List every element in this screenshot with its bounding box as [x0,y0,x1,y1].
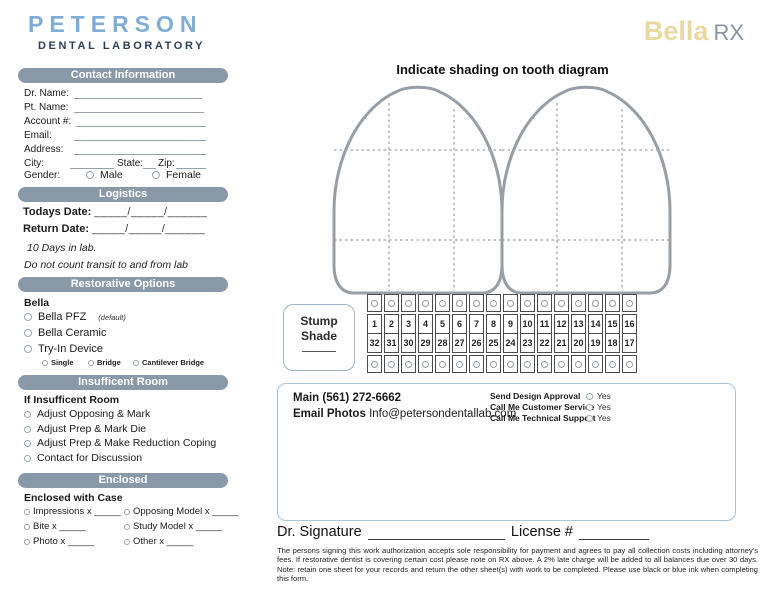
radio-call-customer-service-yes[interactable] [586,404,593,411]
dr-signature-field[interactable] [368,525,505,540]
radio-circle-icon [405,361,412,368]
radio-adjust-prep-reduction-coping[interactable]: Adjust Prep & Make Reduction Coping [24,437,216,449]
radio-circle-icon [558,300,565,307]
tooth-number-upper: 3 [401,314,416,334]
radio-circle-icon [24,411,31,418]
single-label: Single [51,358,74,367]
enclosed-group-label: Enclosed with Case [24,492,123,504]
radio-other[interactable]: Other x _____ [124,536,193,547]
todays-date-label: Todays Date: [23,206,91,218]
stump-shade-label-2: Shade [284,329,354,344]
opposing-model-label: Opposing Model x _____ [133,506,239,517]
tooth-select-upper-13[interactable] [571,294,586,312]
phone-line: Main (561) 272-6662 [293,392,401,404]
email-field[interactable] [74,140,206,141]
tooth-select-lower-27[interactable] [452,355,467,373]
radio-circle-icon [626,300,633,307]
radio-circle-icon [371,300,378,307]
radio-circle-icon [24,539,30,545]
adjust-prep-mark-die-label: Adjust Prep & Mark Die [37,423,146,435]
radio-circle-icon [422,300,429,307]
radio-cantilever-bridge[interactable]: Cantilever Bridge [133,358,204,367]
tooth-select-lower-17[interactable] [622,355,637,373]
radio-circle-icon [24,313,32,321]
todays-date-row[interactable]: Todays Date: _____/_____/______ [23,206,207,218]
radio-circle-icon [439,300,446,307]
email-label: Email: [24,130,52,141]
company-logo-subtitle: DENTAL LABORATORY [38,40,205,52]
phone-label: Main [293,392,319,404]
tooth-select-lower-25[interactable] [486,355,501,373]
radio-circle-icon [456,361,463,368]
todays-date-field[interactable]: _____/_____/______ [94,206,207,218]
tooth-number-lower: 30 [401,333,416,353]
radio-single[interactable]: Single [42,358,74,367]
tooth-select-lower-18[interactable] [605,355,620,373]
tooth-chart-column: 1023 [520,294,535,373]
pt-name-label: Pt. Name: [24,102,68,113]
tooth-number-upper: 12 [554,314,569,334]
radio-circle-icon [575,300,582,307]
tooth-shading-diagram[interactable] [330,80,675,298]
email-photos-label: Email Photos [293,408,366,420]
bella-pfz-label: Bella PFZ [38,311,86,323]
radio-adjust-prep-mark-die[interactable]: Adjust Prep & Mark Die [24,423,146,435]
tooth-chart-column: 528 [435,294,450,373]
tooth-number-lower: 17 [622,333,637,353]
section-header-contact-information: Contact Information [18,68,228,83]
tooth-chart-column: 825 [486,294,501,373]
tooth-number-upper: 13 [571,314,586,334]
tooth-select-lower-20[interactable] [571,355,586,373]
tooth-chart-column: 132 [367,294,382,373]
radio-circle-icon [609,300,616,307]
tooth-chart-column: 1518 [605,294,620,373]
restorative-group-label: Bella [24,297,49,309]
tooth-select-lower-28[interactable] [435,355,450,373]
tooth-select-upper-11[interactable] [537,294,552,312]
radio-circle-icon [473,300,480,307]
tooth-number-upper: 8 [486,314,501,334]
call-me-customer-service-row: Call Me Customer Service Yes [490,402,730,412]
tooth-select-upper-12[interactable] [554,294,569,312]
radio-circle-icon [124,539,130,545]
send-design-approval-row: Send Design Approval Yes [490,391,730,401]
tooth-select-upper-16[interactable] [622,294,637,312]
tooth-select-lower-29[interactable] [418,355,433,373]
radio-circle-icon [133,360,139,366]
return-date-label: Return Date: [23,223,89,235]
tooth-number-lower: 25 [486,333,501,353]
radio-circle-icon [24,509,30,515]
tooth-diagram-title: Indicate shading on tooth diagram [330,62,675,77]
gender-female-label: Female [166,169,201,181]
account-label: Account #: [24,116,71,127]
tooth-number-lower: 21 [554,333,569,353]
tooth-select-upper-15[interactable] [605,294,620,312]
radio-circle-icon [24,345,32,353]
radio-gender-female[interactable]: Female [152,169,201,181]
call-me-technical-support-label: Call Me Technical Support [490,413,586,423]
radio-circle-icon [524,300,531,307]
tooth-select-lower-30[interactable] [401,355,416,373]
tooth-chart: 1322313304295286277268259241023112212211… [367,294,637,373]
pt-name-field[interactable] [74,112,204,113]
default-note: (default) [98,313,126,322]
radio-circle-icon [541,361,548,368]
tooth-chart-column: 627 [452,294,467,373]
tooth-number-lower: 22 [537,333,552,353]
radio-circle-icon [88,360,94,366]
radio-circle-icon [422,361,429,368]
tooth-number-upper: 11 [537,314,552,334]
radio-circle-icon [575,361,582,368]
radio-circle-icon [490,361,497,368]
radio-circle-icon [42,360,48,366]
stump-shade-label-1: Stump [284,314,354,329]
radio-send-design-approval-yes[interactable] [586,393,593,400]
tooth-select-upper-6[interactable] [452,294,467,312]
tooth-number-lower: 18 [605,333,620,353]
tooth-select-lower-21[interactable] [554,355,569,373]
radio-circle-icon [388,361,395,368]
yes-label: Yes [597,413,611,423]
tooth-select-upper-14[interactable] [588,294,603,312]
tooth-select-upper-4[interactable] [418,294,433,312]
tooth-number-upper: 7 [469,314,484,334]
radio-circle-icon [473,361,480,368]
tooth-chart-column: 1419 [588,294,603,373]
lab-days-note: 10 Days in lab. [27,242,96,254]
company-logo: PETERSON [28,11,203,38]
product-suffix: RX [713,20,744,45]
section-header-restorative-options: Restorative Options [18,277,228,292]
tooth-select-upper-7[interactable] [469,294,484,312]
tooth-select-upper-8[interactable] [486,294,501,312]
tooth-select-lower-32[interactable] [367,355,382,373]
tooth-chart-column: 330 [401,294,416,373]
bella-ceramic-label: Bella Ceramic [38,327,106,339]
tooth-chart-column: 1617 [622,294,637,373]
tooth-select-lower-19[interactable] [588,355,603,373]
license-label: License # [511,524,573,540]
tooth-select-lower-23[interactable] [520,355,535,373]
tooth-number-upper: 6 [452,314,467,334]
radio-adjust-opposing[interactable]: Adjust Opposing & Mark [24,408,150,420]
tooth-select-lower-26[interactable] [469,355,484,373]
tooth-select-lower-22[interactable] [537,355,552,373]
call-me-customer-service-label: Call Me Customer Service [490,402,586,412]
radio-circle-icon [592,361,599,368]
tooth-number-lower: 32 [367,333,382,353]
return-date-field[interactable]: _____/_____/______ [92,223,205,235]
transit-note: Do not count transit to and from lab [24,259,188,271]
email-line: Email Photos Info@petersondentallab.com [293,408,516,420]
radio-circle-icon [388,300,395,307]
tooth-number-lower: 31 [384,333,399,353]
study-model-label: Study Model x _____ [133,521,222,532]
tooth-chart-column: 429 [418,294,433,373]
radio-circle-icon [592,300,599,307]
radio-circle-icon [24,329,32,337]
radio-circle-icon [24,455,31,462]
legal-disclaimer: The persons signing this work authorizat… [277,546,758,584]
section-header-enclosed: Enclosed [18,473,228,488]
dr-name-label: Dr. Name: [24,88,69,99]
address-label: Address: [24,144,63,155]
tooth-select-upper-9[interactable] [503,294,518,312]
radio-circle-icon [405,300,412,307]
radio-bella-ceramic[interactable]: Bella Ceramic [24,327,106,339]
phone-number: (561) 272-6662 [322,392,401,404]
bridge-label: Bridge [97,358,121,367]
tooth-number-lower: 26 [469,333,484,353]
send-design-approval-label: Send Design Approval [490,391,586,401]
cantilever-bridge-label: Cantilever Bridge [142,358,204,367]
radio-circle-icon [626,361,633,368]
tooth-number-upper: 9 [503,314,518,334]
radio-circle-icon [609,361,616,368]
zip-label: Zip: [158,158,175,169]
account-field[interactable] [76,126,206,127]
yes-label: Yes [597,391,611,401]
adjust-opposing-label: Adjust Opposing & Mark [37,408,150,420]
radio-circle-icon [86,171,94,179]
radio-circle-icon [541,300,548,307]
radio-gender-male[interactable]: Male [86,169,123,181]
tooth-select-upper-5[interactable] [435,294,450,312]
radio-impressions[interactable]: Impressions x _____ [24,506,121,517]
photo-label: Photo x _____ [33,536,94,547]
tooth-number-upper: 1 [367,314,382,334]
dr-signature-label: Dr. Signature [277,524,362,540]
section-header-insufficient-room: Insufficent Room [18,375,228,390]
radio-circle-icon [507,361,514,368]
tooth-select-upper-2[interactable] [384,294,399,312]
license-field[interactable] [579,525,649,540]
radio-circle-icon [124,509,130,515]
dr-name-field[interactable] [74,98,202,99]
radio-opposing-model[interactable]: Opposing Model x _____ [124,506,239,517]
stump-shade-box: Stump Shade [283,304,355,371]
tooth-select-upper-10[interactable] [520,294,535,312]
tooth-number-upper: 2 [384,314,399,334]
gender-label: Gender: [24,170,60,181]
address-field[interactable] [74,154,206,155]
tooth-number-lower: 19 [588,333,603,353]
tooth-number-lower: 24 [503,333,518,353]
tooth-number-upper: 5 [435,314,450,334]
radio-circle-icon [24,426,31,433]
tooth-chart-column: 924 [503,294,518,373]
tooth-select-lower-31[interactable] [384,355,399,373]
tooth-select-upper-3[interactable] [401,294,416,312]
tooth-chart-column: 231 [384,294,399,373]
tooth-number-upper: 14 [588,314,603,334]
state-label: State: [117,158,143,169]
tooth-number-upper: 16 [622,314,637,334]
radio-circle-icon [24,524,30,530]
return-date-row[interactable]: Return Date: _____/_____/______ [23,223,205,235]
radio-try-in-device[interactable]: Try-In Device [24,343,103,355]
radio-circle-icon [456,300,463,307]
tooth-diagram-left[interactable] [334,87,502,293]
tooth-chart-column: 1122 [537,294,552,373]
tooth-chart-column: 726 [469,294,484,373]
radio-photo[interactable]: Photo x _____ [24,536,94,547]
stump-shade-field[interactable] [302,351,336,352]
tooth-diagram-right[interactable] [502,87,670,293]
radio-study-model[interactable]: Study Model x _____ [124,521,222,532]
tooth-number-lower: 27 [452,333,467,353]
tooth-number-lower: 23 [520,333,535,353]
bite-label: Bite x _____ [33,521,86,532]
radio-circle-icon [439,361,446,368]
product-name: Bella [644,16,709,46]
impressions-label: Impressions x _____ [33,506,121,517]
call-me-technical-support-row: Call Me Technical Support Yes [490,413,730,423]
tooth-chart-column: 1221 [554,294,569,373]
tooth-number-lower: 20 [571,333,586,353]
tooth-select-upper-1[interactable] [367,294,382,312]
radio-circle-icon [524,361,531,368]
radio-circle-icon [558,361,565,368]
radio-bite[interactable]: Bite x _____ [24,521,86,532]
tooth-number-upper: 15 [605,314,620,334]
gender-male-label: Male [100,169,123,181]
other-label: Other x _____ [133,536,193,547]
yes-label: Yes [597,402,611,412]
tooth-number-upper: 10 [520,314,535,334]
radio-circle-icon [507,300,514,307]
rx-form-page: PETERSON DENTAL LABORATORY BellaRX Conta… [0,0,768,593]
tooth-number-lower: 28 [435,333,450,353]
radio-bridge[interactable]: Bridge [88,358,121,367]
try-in-device-label: Try-In Device [38,343,103,355]
tooth-chart-column: 1320 [571,294,586,373]
radio-circle-icon [24,440,31,447]
insufficient-room-group-label: If Insufficent Room [24,394,119,406]
signature-row: Dr. Signature License # [277,524,649,540]
radio-circle-icon [124,524,130,530]
tooth-number-upper: 4 [418,314,433,334]
radio-contact-for-discussion[interactable]: Contact for Discussion [24,452,142,464]
product-title: BellaRX [644,16,744,47]
radio-circle-icon [152,171,160,179]
radio-circle-icon [490,300,497,307]
tooth-select-lower-24[interactable] [503,355,518,373]
radio-circle-icon [371,361,378,368]
notes-box[interactable]: Main (561) 272-6662 Email Photos Info@pe… [277,383,736,521]
radio-bella-pfz[interactable]: Bella PFZ(default) [24,311,126,323]
city-label: City: [24,158,44,169]
radio-call-technical-support-yes[interactable] [586,415,593,422]
section-header-logistics: Logistics [18,187,228,202]
adjust-prep-reduction-coping-label: Adjust Prep & Make Reduction Coping [37,437,216,449]
tooth-number-lower: 29 [418,333,433,353]
contact-for-discussion-label: Contact for Discussion [37,452,142,464]
